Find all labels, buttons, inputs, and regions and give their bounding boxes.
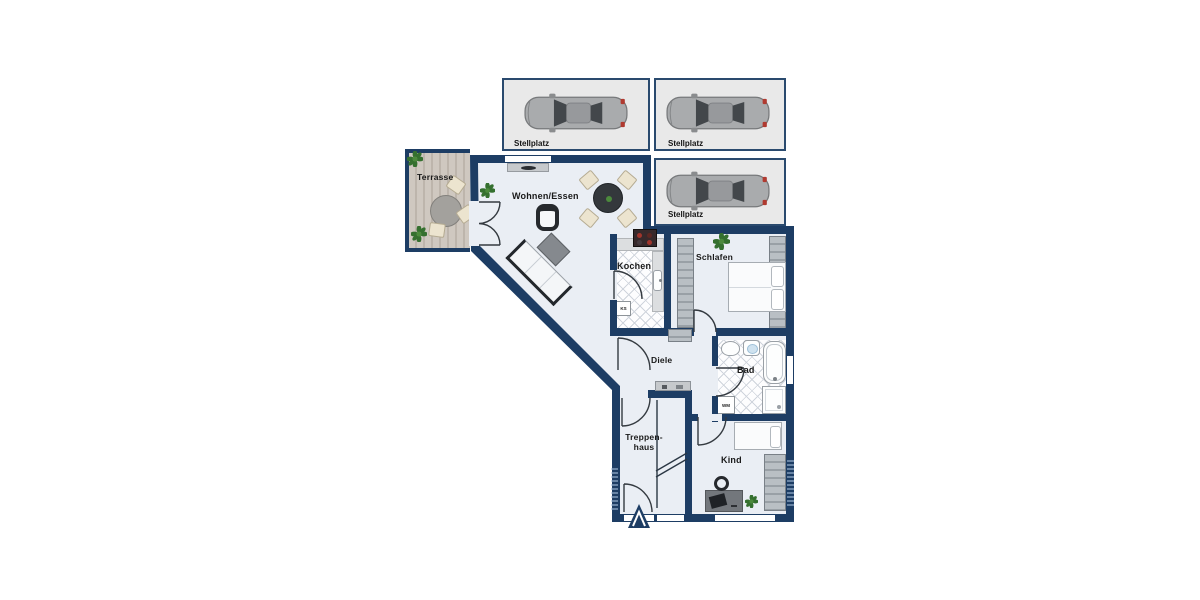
sideboard-item [662,385,667,389]
washbasin [721,341,740,356]
wall [685,390,692,514]
room-label-kind: Kind [721,455,742,465]
laptop [709,493,728,509]
window [786,356,794,384]
window [505,155,551,163]
terrace-chair [428,222,446,238]
burner [637,233,642,238]
kitchen-sink [653,270,662,291]
wardrobe [677,238,694,328]
room-label-terrasse: Terrasse [417,172,453,182]
toilet-bowl [747,344,758,354]
door-opening-bath [712,366,718,396]
watermark [611,466,618,510]
fridge: KS [616,301,631,316]
wardrobe [769,236,786,263]
burner [637,240,642,245]
shower [762,386,786,414]
sofa-seam [539,271,556,288]
washing-machine: WM [717,396,735,414]
washing-machine-label: WM [722,403,730,408]
door-opening-terrace [469,201,479,246]
entrance-opening [624,514,654,522]
hall-closet [668,329,692,342]
pillow [771,266,784,287]
dining-table [593,183,623,213]
single-bed [734,422,782,450]
burner [647,233,652,238]
tv [521,166,536,170]
pillow [771,289,784,310]
pillow [770,426,781,448]
toilet [743,340,760,356]
wall [664,234,671,332]
burner [647,240,652,245]
bathtub [763,341,786,384]
tub-faucet [773,377,777,381]
fridge-label: KS [620,306,626,311]
drain [777,405,781,409]
parking-label-3: Stellplatz [668,210,703,219]
door-opening-kids [698,414,722,421]
room-label-bad: Bad [737,365,755,375]
faucet [659,279,662,282]
hall-sideboard [655,381,691,391]
room-label-treppenhaus: Treppen- haus [612,432,676,452]
floor-plan: Stellplatz Stellplatz Stellplatz KS [0,0,1200,600]
window [657,514,684,522]
room-label-schlafen: Schlafen [696,252,733,262]
double-bed [728,262,786,312]
stove [633,229,657,247]
desk [705,490,743,512]
wardrobe [764,454,786,511]
door-opening-bedroom [694,328,716,336]
tv-lowboard [507,163,549,172]
wall [648,390,692,398]
parking-label-2: Stellplatz [668,139,703,148]
desk-item [731,505,737,507]
room-label-kochen: Kochen [617,261,651,271]
sofa-seam [525,257,542,274]
window [715,514,775,522]
sideboard-item [676,385,683,389]
room-label-diele: Diele [651,355,672,365]
treppenhaus-line1: Treppen- [612,432,676,442]
desk-chair [714,476,729,491]
watermark [787,460,794,506]
armchair [536,204,559,231]
bathtub-inner [766,344,783,381]
parking-label-1: Stellplatz [514,139,549,148]
treppenhaus-line2: haus [612,442,676,452]
room-label-wohnen-essen: Wohnen/Essen [512,191,579,201]
door-opening-kitchen [610,270,617,300]
table-plant [606,196,612,202]
bed-seam [729,287,771,288]
